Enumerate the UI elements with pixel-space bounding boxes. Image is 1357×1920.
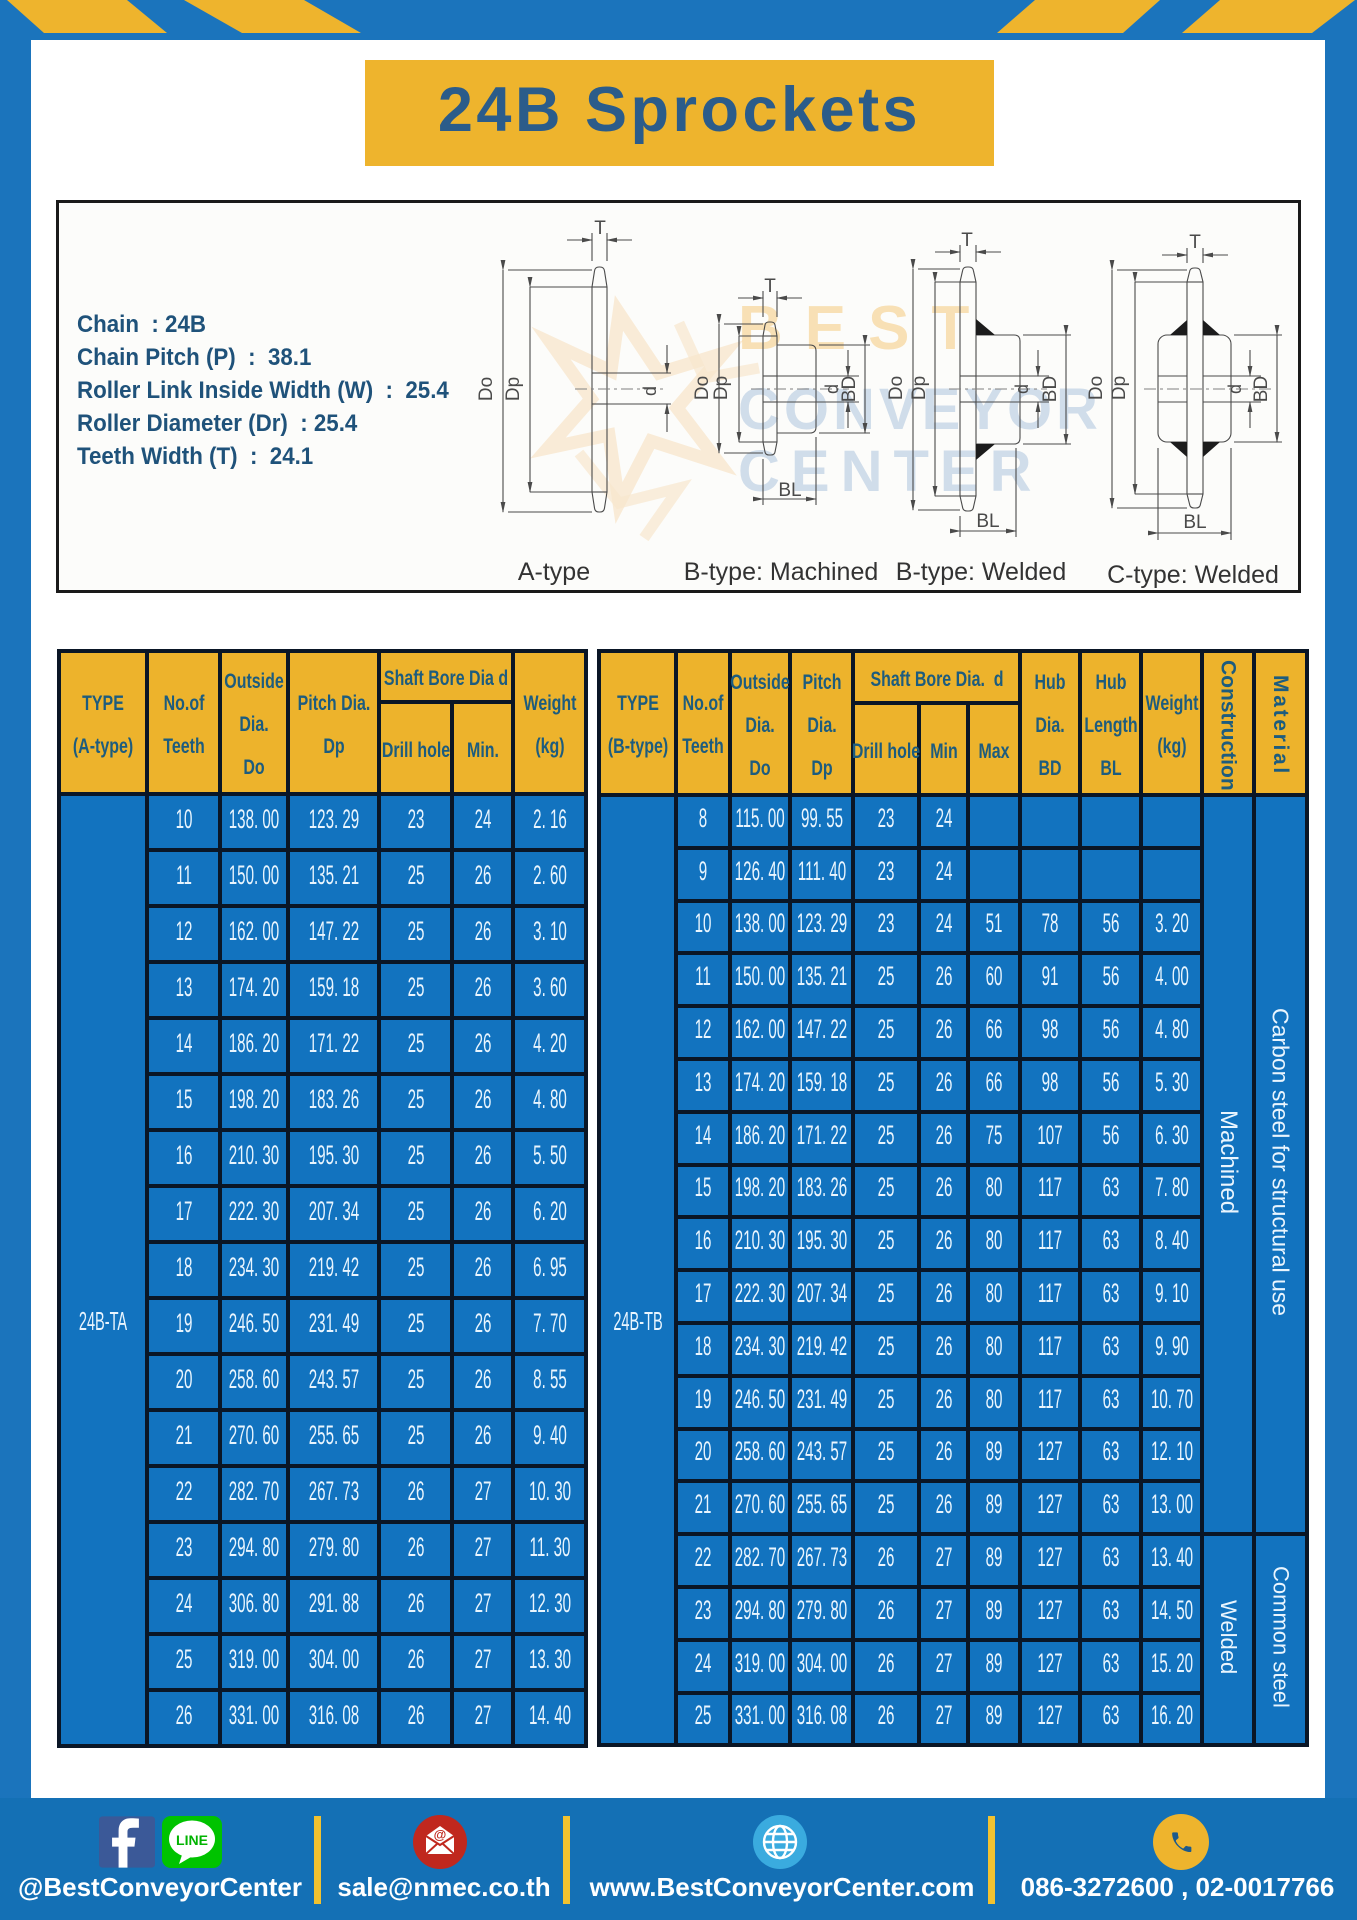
svg-text:T: T [1189, 232, 1201, 253]
svg-text:BL: BL [1183, 512, 1206, 533]
svg-text:B-type: Machined: B-type: Machined [684, 558, 879, 586]
svg-text:T: T [764, 276, 776, 297]
svg-text:BD: BD [1040, 376, 1061, 402]
svg-text:Dp: Dp [711, 376, 732, 400]
svg-text:d: d [1012, 384, 1032, 394]
svg-text:d: d [1225, 384, 1245, 394]
svg-text:T: T [594, 218, 606, 239]
svg-text:BL: BL [778, 480, 801, 501]
svg-text:B-type: Welded: B-type: Welded [896, 558, 1066, 586]
svg-text:LINE: LINE [176, 1832, 208, 1848]
svg-text:BD: BD [839, 376, 860, 402]
svg-text:Do: Do [692, 376, 713, 400]
svg-text:Dp: Dp [909, 376, 930, 400]
svg-text:Dp: Dp [503, 377, 524, 401]
svg-text:BL: BL [976, 511, 999, 532]
svg-text:d: d [640, 386, 660, 396]
svg-text:Do: Do [886, 376, 907, 400]
svg-text:BD: BD [1251, 376, 1272, 402]
svg-text:Do: Do [476, 377, 497, 401]
svg-text:Dp: Dp [1109, 376, 1130, 400]
svg-text:@: @ [434, 1827, 447, 1842]
svg-text:Do: Do [1086, 376, 1107, 400]
svg-text:C-type: Welded: C-type: Welded [1107, 561, 1279, 589]
svg-text:A-type: A-type [518, 558, 590, 586]
svg-text:T: T [961, 230, 973, 251]
